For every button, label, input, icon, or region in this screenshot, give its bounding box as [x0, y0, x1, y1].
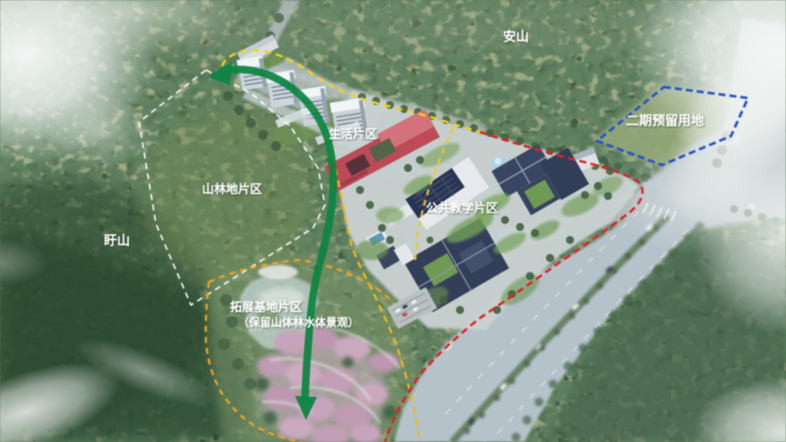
svg-text:安山: 安山	[503, 29, 529, 44]
svg-text:山林地片区: 山林地片区	[202, 181, 262, 196]
svg-text:（保留山体林水体景观）: （保留山体林水体景观）	[238, 315, 359, 329]
svg-text:公共教学片区: 公共教学片区	[426, 200, 498, 215]
svg-text:二期预留用地: 二期预留用地	[626, 113, 704, 128]
svg-text:拓展基地片区: 拓展基地片区	[230, 299, 302, 314]
svg-text:盱山: 盱山	[104, 233, 130, 248]
svg-text:生活片区: 生活片区	[329, 126, 377, 141]
